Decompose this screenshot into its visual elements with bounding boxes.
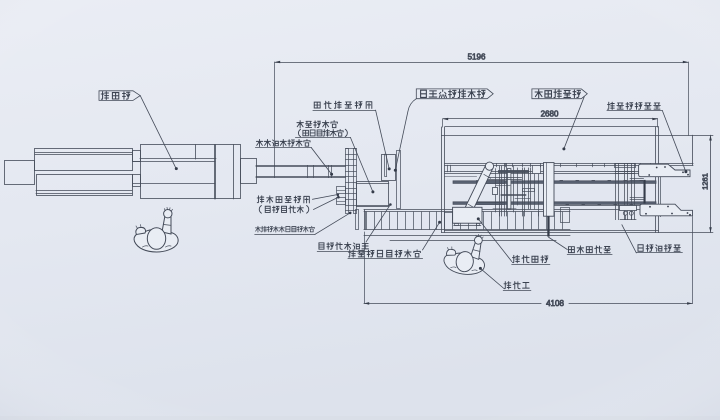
svg-text:1261: 1261 bbox=[701, 173, 710, 190]
svg-text:4108: 4108 bbox=[546, 299, 564, 308]
svg-text:2680: 2680 bbox=[541, 109, 559, 118]
svg-text:5196: 5196 bbox=[468, 52, 486, 61]
